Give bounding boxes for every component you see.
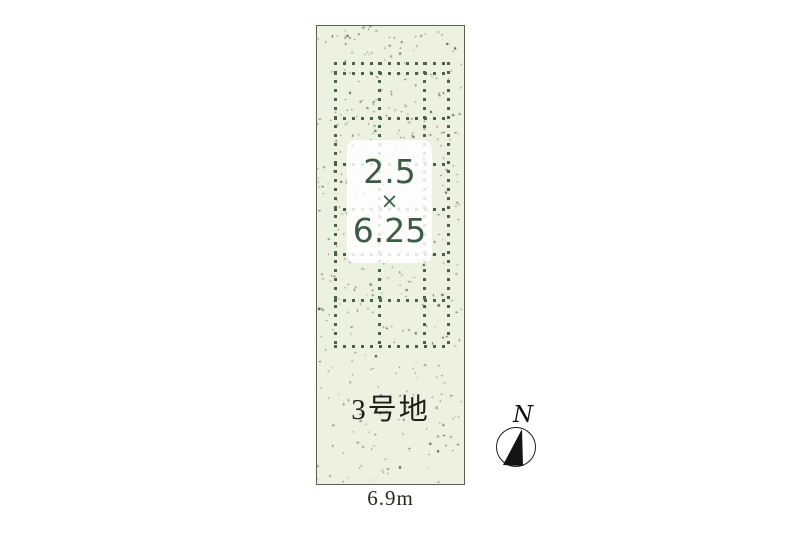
north-label: N	[513, 402, 533, 428]
multiply-icon: ×	[381, 191, 399, 212]
compass-needle-icon	[496, 427, 536, 467]
stall-depth-value: 6.25	[353, 214, 426, 248]
compass: N	[496, 402, 540, 472]
plot-number-label: 3号地	[316, 386, 465, 428]
frontage-dimension-label: 6.9m	[316, 486, 465, 511]
dimension-label-box: 2.5 × 6.25	[347, 140, 432, 263]
page-canvas: 2.5 × 6.25 3号地 6.9m N	[0, 0, 801, 534]
stall-width-value: 2.5	[363, 155, 415, 189]
